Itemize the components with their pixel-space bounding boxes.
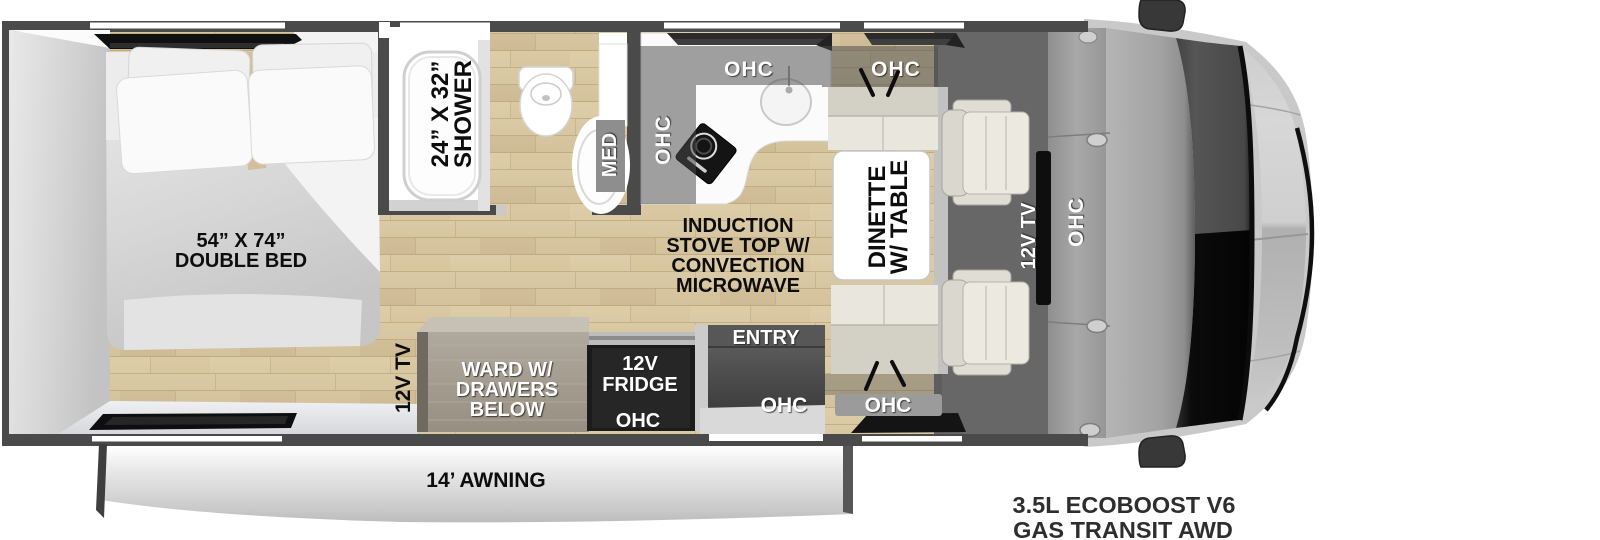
svg-text:12V TV: 12V TV (1018, 202, 1040, 269)
svg-text:OHC: OHC (761, 394, 808, 417)
svg-text:ENTRY: ENTRY (732, 327, 800, 349)
svg-text:FRIDGE: FRIDGE (602, 374, 678, 396)
svg-text:CONVECTION: CONVECTION (671, 255, 804, 277)
svg-text:OHC: OHC (724, 58, 774, 81)
svg-text:DRAWERS: DRAWERS (456, 379, 558, 401)
svg-text:MED: MED (599, 133, 621, 177)
svg-text:DOUBLE BED: DOUBLE BED (175, 250, 307, 272)
svg-text:12V: 12V (622, 353, 658, 375)
svg-text:W/ TABLE: W/ TABLE (886, 160, 913, 274)
svg-text:14’ AWNING: 14’ AWNING (426, 469, 545, 492)
svg-text:3.5L ECOBOOST V6: 3.5L ECOBOOST V6 (1013, 492, 1236, 518)
svg-text:GAS TRANSIT AWD: GAS TRANSIT AWD (1013, 517, 1233, 540)
svg-text:12V TV: 12V TV (392, 343, 415, 413)
svg-text:OHC: OHC (1065, 197, 1088, 247)
svg-text:54” X 74”: 54” X 74” (197, 230, 286, 252)
svg-text:SHOWER: SHOWER (450, 60, 477, 168)
svg-text:MICROWAVE: MICROWAVE (676, 275, 800, 297)
svg-text:WARD W/: WARD W/ (461, 359, 553, 381)
svg-text:OHC: OHC (616, 410, 660, 432)
svg-text:OHC: OHC (652, 115, 675, 165)
svg-text:BELOW: BELOW (470, 399, 545, 421)
svg-text:STOVE TOP W/: STOVE TOP W/ (666, 235, 810, 257)
svg-text:INDUCTION: INDUCTION (682, 215, 793, 237)
svg-text:OHC: OHC (865, 394, 912, 417)
